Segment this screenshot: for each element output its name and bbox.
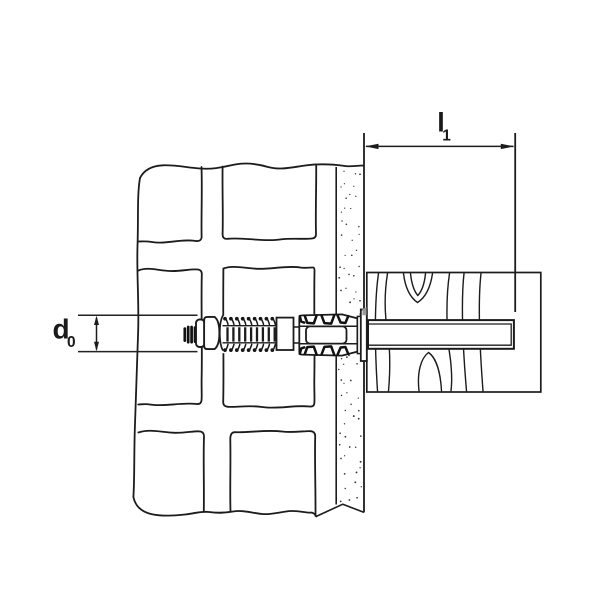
svg-text:1: 1	[442, 128, 451, 145]
svg-text:0: 0	[67, 334, 76, 351]
